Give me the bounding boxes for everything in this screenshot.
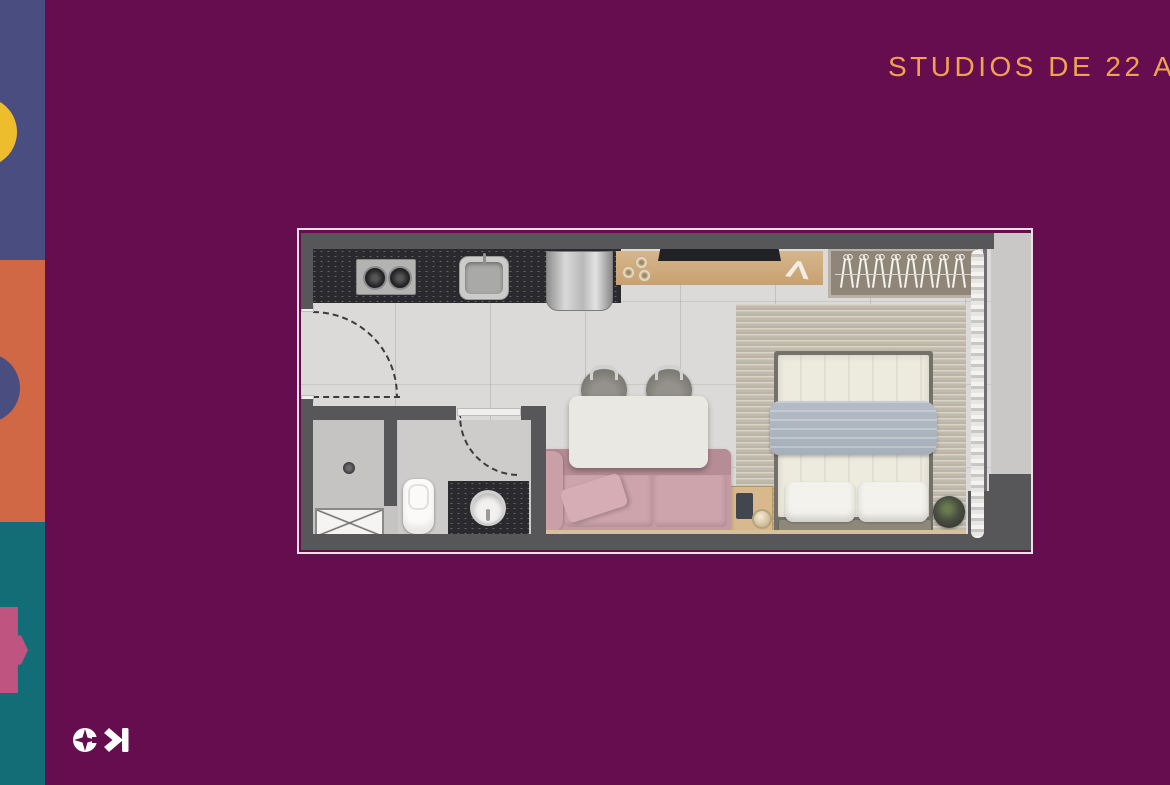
tv — [658, 248, 781, 261]
slide: { "header": { "title": "STUDIOS DE 22 A"… — [0, 0, 1170, 785]
bowl-icon — [635, 256, 648, 269]
hanger-icon — [904, 258, 910, 288]
hanger-icon — [888, 258, 894, 288]
hanger-icon — [896, 258, 902, 288]
hanger-icon — [944, 258, 950, 288]
faucet — [483, 253, 486, 265]
toilet — [403, 479, 434, 534]
wall-bathroom-top — [301, 406, 456, 420]
burner-left — [363, 266, 387, 290]
table-lamp — [752, 509, 772, 529]
brand-logo — [70, 726, 140, 754]
wardrobe — [828, 248, 978, 298]
wall-left-lower — [301, 399, 313, 550]
bathroom-faucet — [486, 509, 490, 521]
entry-door-line — [313, 396, 400, 398]
bowl-icon — [638, 269, 651, 282]
hanger-icon — [920, 258, 926, 288]
yellow-circle-shape — [0, 97, 17, 167]
kitchen-sink — [459, 256, 509, 300]
pink-cross-shape — [0, 607, 28, 693]
bed-blanket — [770, 401, 937, 455]
logo-mark-icon — [70, 726, 140, 754]
wall-divider — [531, 406, 546, 550]
bed-pillow-left — [785, 482, 855, 522]
hanger-icon — [856, 258, 862, 288]
hanger-icon — [848, 258, 854, 288]
wall-left-upper — [301, 233, 313, 309]
cooktop — [356, 259, 416, 295]
side-table-object — [736, 493, 753, 519]
wall-bottom — [301, 534, 968, 550]
sofa-cushion-right — [655, 475, 727, 527]
hanger-icon — [960, 258, 966, 288]
bathroom-door-leaf — [457, 408, 521, 416]
refrigerator — [546, 251, 613, 311]
page-title: STUDIOS DE 22 A — [888, 51, 1170, 83]
hanger-icon — [928, 258, 934, 288]
floorplan — [297, 228, 1033, 554]
hanger-icon — [912, 258, 918, 288]
hanger-icon — [880, 258, 886, 288]
shower-head — [343, 462, 355, 474]
wardrobe-hangers — [837, 255, 969, 291]
hanger-icon — [872, 258, 878, 288]
fruit-bowls — [621, 254, 655, 282]
bed-pillow-right — [858, 482, 928, 522]
bowl-icon — [622, 266, 635, 279]
sink-basin — [465, 262, 503, 294]
wall-top — [301, 233, 994, 249]
hanger-icon — [936, 258, 942, 288]
dining-table — [569, 396, 708, 468]
sidebar-block-teal — [0, 522, 45, 785]
hanger-icon — [864, 258, 870, 288]
shower-partition — [384, 420, 397, 506]
blue-circle-shape — [0, 353, 20, 423]
curtain — [971, 250, 984, 538]
column-right — [989, 474, 1031, 550]
sidebar-block-blue — [0, 0, 45, 260]
hanger-icon — [952, 258, 958, 288]
hanger-icon — [840, 258, 846, 288]
burner-right — [388, 266, 412, 290]
plant-pot — [933, 496, 965, 528]
side-table — [729, 486, 773, 533]
sidebar-block-orange — [0, 260, 45, 522]
